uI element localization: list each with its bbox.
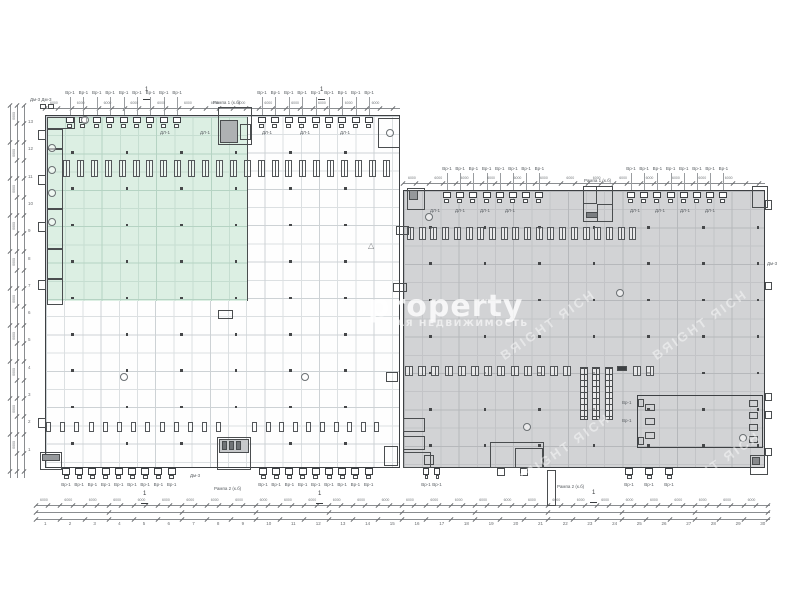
axis-number-bottom: 20 — [513, 522, 518, 527]
column-marker — [429, 299, 432, 302]
dock-door — [443, 192, 451, 198]
rack-unit — [216, 422, 221, 432]
dimension-value: 6000 — [674, 499, 682, 503]
axis-number-left: 5 — [28, 338, 31, 343]
dimension-value: 6000 — [11, 441, 15, 449]
rack-unit — [431, 366, 439, 376]
dock-door-stub — [444, 199, 449, 203]
room — [38, 418, 46, 428]
rack-unit — [442, 227, 449, 240]
room — [752, 457, 760, 465]
dock-leader — [124, 97, 125, 115]
dock-door-stub — [121, 124, 126, 128]
axis-number-bottom: 9 — [242, 522, 245, 527]
grid-bubble — [48, 144, 56, 152]
dimension-value: 6000 — [138, 499, 146, 503]
dimension-value: 6000 — [11, 332, 15, 340]
dock-door-stub — [116, 475, 121, 479]
room — [515, 448, 543, 468]
dock-door — [665, 468, 673, 475]
room — [583, 186, 597, 204]
dimension-value: 6000 — [235, 499, 243, 503]
axis-number-bottom: 10 — [266, 522, 271, 527]
column-marker — [180, 297, 183, 300]
dock-door — [93, 117, 101, 123]
dock-door — [535, 192, 543, 198]
rack-unit — [512, 227, 519, 240]
axis-number-left: 10 — [28, 202, 33, 207]
axis-number-bottom: 29 — [736, 522, 741, 527]
rack-unit — [188, 160, 195, 177]
column-marker — [126, 224, 129, 227]
dock-door-stub — [261, 475, 266, 479]
rack-unit — [347, 422, 352, 432]
axis-number-bottom: 18 — [464, 522, 469, 527]
grid-bubble — [48, 166, 56, 174]
dock-door — [146, 117, 154, 123]
rack-unit — [374, 422, 379, 432]
column-marker — [235, 406, 238, 409]
room — [586, 212, 598, 218]
room — [424, 455, 434, 465]
dock-door — [423, 468, 429, 475]
room — [409, 190, 418, 200]
rack-unit — [524, 227, 531, 240]
dimension-value: 6000 — [211, 102, 219, 106]
dimension-value: 6000 — [238, 102, 246, 106]
rack-unit — [454, 227, 461, 240]
dock-door — [285, 117, 293, 123]
dock-door — [168, 468, 176, 475]
dock-door-stub — [668, 199, 673, 203]
axis-number-bottom: 5 — [143, 522, 146, 527]
dock-door-stub — [366, 475, 371, 479]
dimension-value: 6000 — [430, 499, 438, 503]
dock-door — [106, 117, 114, 123]
dock-leader — [150, 97, 151, 115]
dock-door — [115, 468, 123, 475]
grid-bubble — [81, 116, 89, 124]
dimension-value: 6000 — [514, 177, 522, 181]
axis-number-left: 6 — [28, 311, 31, 316]
dock-door-stub — [470, 199, 475, 203]
axis-number-left: 8 — [28, 257, 31, 262]
room — [749, 400, 758, 407]
dimension-value: 6000 — [646, 177, 654, 181]
rack-column — [592, 367, 600, 420]
column-marker — [71, 369, 74, 372]
rack-unit — [405, 366, 413, 376]
rack-unit — [524, 366, 532, 376]
dimension-value: 6000 — [672, 177, 680, 181]
dimension-value: 6000 — [723, 499, 731, 503]
dock-door — [509, 192, 517, 198]
warning-triangle-icon: △ — [368, 241, 374, 250]
dock-door-stub — [103, 475, 108, 479]
axis-number-bottom: 2 — [69, 522, 72, 527]
column-marker — [126, 260, 129, 263]
column-marker — [235, 224, 238, 227]
room — [218, 310, 233, 319]
room — [765, 282, 772, 290]
dimension-value: 6000 — [11, 185, 15, 193]
room — [520, 468, 528, 476]
axis-number-bottom: 23 — [587, 522, 592, 527]
floor-plan-drawing: △11111Вр-1Вр-1Вр-1Вр-1Вр-1Вр-1Вр-1Вр-1Вр… — [0, 0, 800, 600]
dimension-value: 6000 — [372, 102, 380, 106]
rack-unit — [646, 366, 654, 376]
dock-door-stub — [457, 199, 462, 203]
dimension-value: 6000 — [725, 177, 733, 181]
rack-unit — [74, 422, 79, 432]
dock-door-stub — [130, 475, 135, 479]
axis-number-bottom: 28 — [711, 522, 716, 527]
rack-unit — [550, 366, 558, 376]
rack-unit — [160, 160, 167, 177]
rack-unit — [103, 422, 108, 432]
room — [617, 366, 627, 371]
axis-number-bottom: 7 — [192, 522, 195, 527]
axis-number-left: 9 — [28, 229, 31, 234]
dimension-value: 6000 — [479, 499, 487, 503]
room — [497, 468, 505, 476]
room — [396, 226, 409, 235]
column-marker — [126, 297, 129, 300]
dock-door-stub — [274, 475, 279, 479]
annotation-label: Вр-1 — [622, 401, 632, 406]
dock-door-label: Вр-1 — [429, 483, 445, 488]
rack-unit — [361, 422, 366, 432]
dock-door — [258, 117, 266, 123]
column-marker — [484, 262, 487, 265]
rack-unit — [299, 160, 306, 177]
dock-leader — [684, 173, 685, 190]
dimension-value: 6000 — [11, 149, 15, 157]
rack-unit — [559, 227, 566, 240]
dock-door-stub — [353, 475, 358, 479]
dock-door-stub — [720, 199, 725, 203]
dimension-value: 6000 — [318, 102, 326, 106]
axis-number-bottom: 26 — [662, 522, 667, 527]
dock-door — [627, 192, 635, 198]
dimension-value: 6000 — [748, 499, 756, 503]
annotation-label: ДЛ-1 — [680, 209, 690, 214]
column-marker — [344, 297, 347, 300]
column-marker — [647, 226, 650, 229]
axis-number-bottom: 8 — [217, 522, 220, 527]
column-marker — [593, 335, 596, 338]
room — [240, 124, 251, 140]
dock-leader — [97, 97, 98, 115]
dock-door-stub — [436, 475, 439, 479]
column-marker — [289, 333, 292, 336]
dock-door-stub — [299, 124, 304, 128]
dock-door — [365, 117, 373, 123]
dock-door — [434, 468, 440, 475]
dock-door — [62, 468, 70, 475]
dock-door — [645, 468, 653, 475]
rack-unit — [606, 227, 613, 240]
dimension-value: 6000 — [11, 222, 15, 230]
dimension-value: 6000 — [11, 295, 15, 303]
dock-door-label: Вр-1 — [641, 483, 657, 488]
room — [236, 441, 241, 450]
column-marker — [344, 224, 347, 227]
dimension-value: 6000 — [434, 177, 442, 181]
room — [384, 446, 398, 466]
dock-door-stub — [169, 475, 174, 479]
rack-unit — [445, 366, 453, 376]
column-marker — [235, 151, 238, 154]
dimension-value: 6000 — [593, 177, 601, 181]
dimension-value: 6000 — [357, 499, 365, 503]
rack-unit — [571, 227, 578, 240]
dock-leader — [137, 97, 138, 115]
section-mark-label: 1 — [143, 491, 146, 497]
axis-number-bottom: 24 — [612, 522, 617, 527]
axis-number-left: 12 — [28, 147, 33, 152]
dock-door — [352, 117, 360, 123]
column-marker — [702, 335, 705, 338]
room — [597, 204, 613, 222]
axis-number-bottom: 16 — [415, 522, 420, 527]
column-marker — [180, 260, 183, 263]
grid-bubble — [120, 373, 128, 381]
dock-door-label: Вр-1 — [531, 167, 547, 172]
annotation-label: ДЛ-1 — [160, 131, 170, 136]
column-marker — [484, 299, 487, 302]
rack-unit — [117, 422, 122, 432]
dock-door-stub — [667, 475, 672, 479]
dimension-value: 6000 — [345, 102, 353, 106]
column-marker — [71, 333, 74, 336]
axis-number-left: 3 — [28, 393, 31, 398]
annotation-label: Рампа 2 (к.б) — [557, 485, 584, 490]
room — [393, 283, 407, 292]
dock-door-stub — [339, 124, 344, 128]
column-marker — [344, 151, 347, 154]
dock-door — [680, 192, 688, 198]
dimension-value: 6000 — [77, 102, 85, 106]
dock-door-stub — [156, 475, 161, 479]
dock-door — [285, 468, 293, 475]
column-marker — [180, 442, 183, 445]
dock-door-stub — [80, 124, 85, 128]
room — [38, 175, 46, 185]
axis-number-bottom: 30 — [760, 522, 765, 527]
dimension-value: 6000 — [461, 177, 469, 181]
rack-unit — [418, 366, 426, 376]
dock-leader — [631, 173, 632, 190]
dock-door-stub — [313, 124, 318, 128]
rack-unit — [272, 160, 279, 177]
column-marker — [344, 333, 347, 336]
dock-door — [88, 468, 96, 475]
dock-door — [325, 468, 333, 475]
dock-leader — [526, 173, 527, 190]
dock-door-stub — [326, 124, 331, 128]
grid-bubble — [616, 289, 624, 297]
rack-unit — [89, 422, 94, 432]
rack-unit — [511, 366, 519, 376]
dimension-value: 6000 — [698, 177, 706, 181]
dock-leader — [473, 173, 474, 190]
dock-door-label: Вр-1 — [169, 91, 185, 96]
axis-number-bottom: 1 — [44, 522, 47, 527]
room — [42, 454, 60, 461]
section-mark: 1 — [590, 496, 597, 503]
dock-door-stub — [628, 199, 633, 203]
column-marker — [757, 299, 760, 302]
annotation-label: Рампа 2 (к.б) — [214, 487, 241, 492]
column-marker — [180, 151, 183, 154]
dock-door-stub — [161, 124, 166, 128]
dimension-value: 6000 — [89, 499, 97, 503]
dimension-value: 6000 — [504, 499, 512, 503]
dock-leader — [275, 97, 276, 115]
dock-door-stub — [510, 199, 515, 203]
column-marker — [126, 333, 129, 336]
dock-door — [706, 192, 714, 198]
dock-leader — [369, 97, 370, 115]
rack-unit — [91, 160, 98, 177]
column-marker — [289, 224, 292, 227]
annotation-label: ДЛ-1 — [200, 131, 210, 136]
dimension-value: 6000 — [650, 499, 658, 503]
axis-number-bottom: 25 — [637, 522, 642, 527]
room — [403, 418, 425, 432]
dimension-value: 6000 — [113, 499, 121, 503]
dimension-value: 6000 — [64, 499, 72, 503]
dock-door-stub — [654, 199, 659, 203]
dimension-value: 6000 — [308, 499, 316, 503]
rack-unit — [466, 227, 473, 240]
rack-unit — [536, 227, 543, 240]
axis-number-left: 4 — [28, 366, 31, 371]
dimension-value: 6000 — [157, 102, 165, 106]
dock-door — [102, 468, 110, 475]
column-marker — [593, 444, 596, 447]
rack-unit — [202, 422, 207, 432]
annotation-label: ДЛ-1 — [655, 209, 665, 214]
dock-door-stub — [94, 124, 99, 128]
column-marker — [71, 260, 74, 263]
dock-door-stub — [64, 475, 69, 479]
rack-unit — [258, 160, 265, 177]
dimension-value: 6000 — [528, 499, 536, 503]
column-marker — [344, 187, 347, 190]
dimension-value: 6000 — [406, 499, 414, 503]
axis-number-bottom: 21 — [538, 522, 543, 527]
dock-door-stub — [707, 199, 712, 203]
column-marker — [180, 187, 183, 190]
axis-number-bottom: 17 — [439, 522, 444, 527]
annotation-label: ДЛ-1 — [262, 131, 272, 136]
axis-number-bottom: 12 — [316, 522, 321, 527]
dock-leader — [70, 97, 71, 115]
room — [47, 209, 63, 249]
column-marker — [71, 187, 74, 190]
dock-door-stub — [300, 475, 305, 479]
rack-unit — [146, 160, 153, 177]
dock-leader — [289, 97, 290, 115]
dock-door — [640, 192, 648, 198]
dock-door — [272, 468, 280, 475]
column-marker — [126, 406, 129, 409]
rack-unit — [46, 422, 51, 432]
column-marker — [538, 299, 541, 302]
dock-door — [299, 468, 307, 475]
rack-unit — [279, 422, 284, 432]
column-marker — [484, 408, 487, 411]
dimension-value: 6000 — [626, 499, 634, 503]
dock-door-stub — [90, 475, 95, 479]
grid-bubble — [48, 218, 56, 226]
dock-door — [483, 192, 491, 198]
rack-unit — [458, 366, 466, 376]
rack-column — [580, 367, 588, 420]
dock-door-stub — [484, 199, 489, 203]
room — [386, 372, 398, 382]
rack-unit — [369, 160, 376, 177]
room — [645, 404, 655, 411]
dock-leader — [447, 173, 448, 190]
room — [38, 222, 46, 232]
annotation-label: ДЛ-1 — [300, 131, 310, 136]
dock-door-stub — [134, 124, 139, 128]
axis-number-bottom: 14 — [365, 522, 370, 527]
column-marker — [289, 442, 292, 445]
dock-door — [133, 117, 141, 123]
dock-door — [259, 468, 267, 475]
dock-door-stub — [77, 475, 82, 479]
grid-bubble — [386, 129, 394, 137]
dock-door-stub — [272, 124, 277, 128]
room — [220, 120, 238, 143]
dock-door — [75, 468, 83, 475]
column-marker — [757, 262, 760, 265]
axis-number-bottom: 13 — [340, 522, 345, 527]
dock-door — [456, 192, 464, 198]
column-marker — [429, 444, 432, 447]
dimension-value: 6000 — [408, 177, 416, 181]
rack-column — [605, 367, 613, 420]
dock-door — [120, 117, 128, 123]
room — [765, 200, 772, 210]
dock-door-stub — [536, 199, 541, 203]
annotation-label: Вр-1 — [622, 419, 632, 424]
room — [38, 280, 46, 290]
column-marker — [289, 187, 292, 190]
axis-number-bottom: 19 — [489, 522, 494, 527]
dock-door-label: Вр-1 — [715, 167, 731, 172]
axis-number-left: 13 — [28, 120, 33, 125]
rack-unit — [63, 160, 70, 177]
column-marker — [429, 335, 432, 338]
dock-leader — [110, 97, 111, 115]
dock-door — [693, 192, 701, 198]
room — [229, 441, 234, 450]
column-marker — [429, 408, 432, 411]
axis-number-left: 2 — [28, 420, 31, 425]
rack-unit — [320, 422, 325, 432]
section-mark-label: 1 — [318, 491, 321, 497]
room — [47, 279, 63, 305]
axis-number-bottom: 27 — [686, 522, 691, 527]
column-marker — [593, 299, 596, 302]
column-marker — [289, 369, 292, 372]
annotation-label: Дм-3 Дм-3 — [30, 98, 52, 103]
